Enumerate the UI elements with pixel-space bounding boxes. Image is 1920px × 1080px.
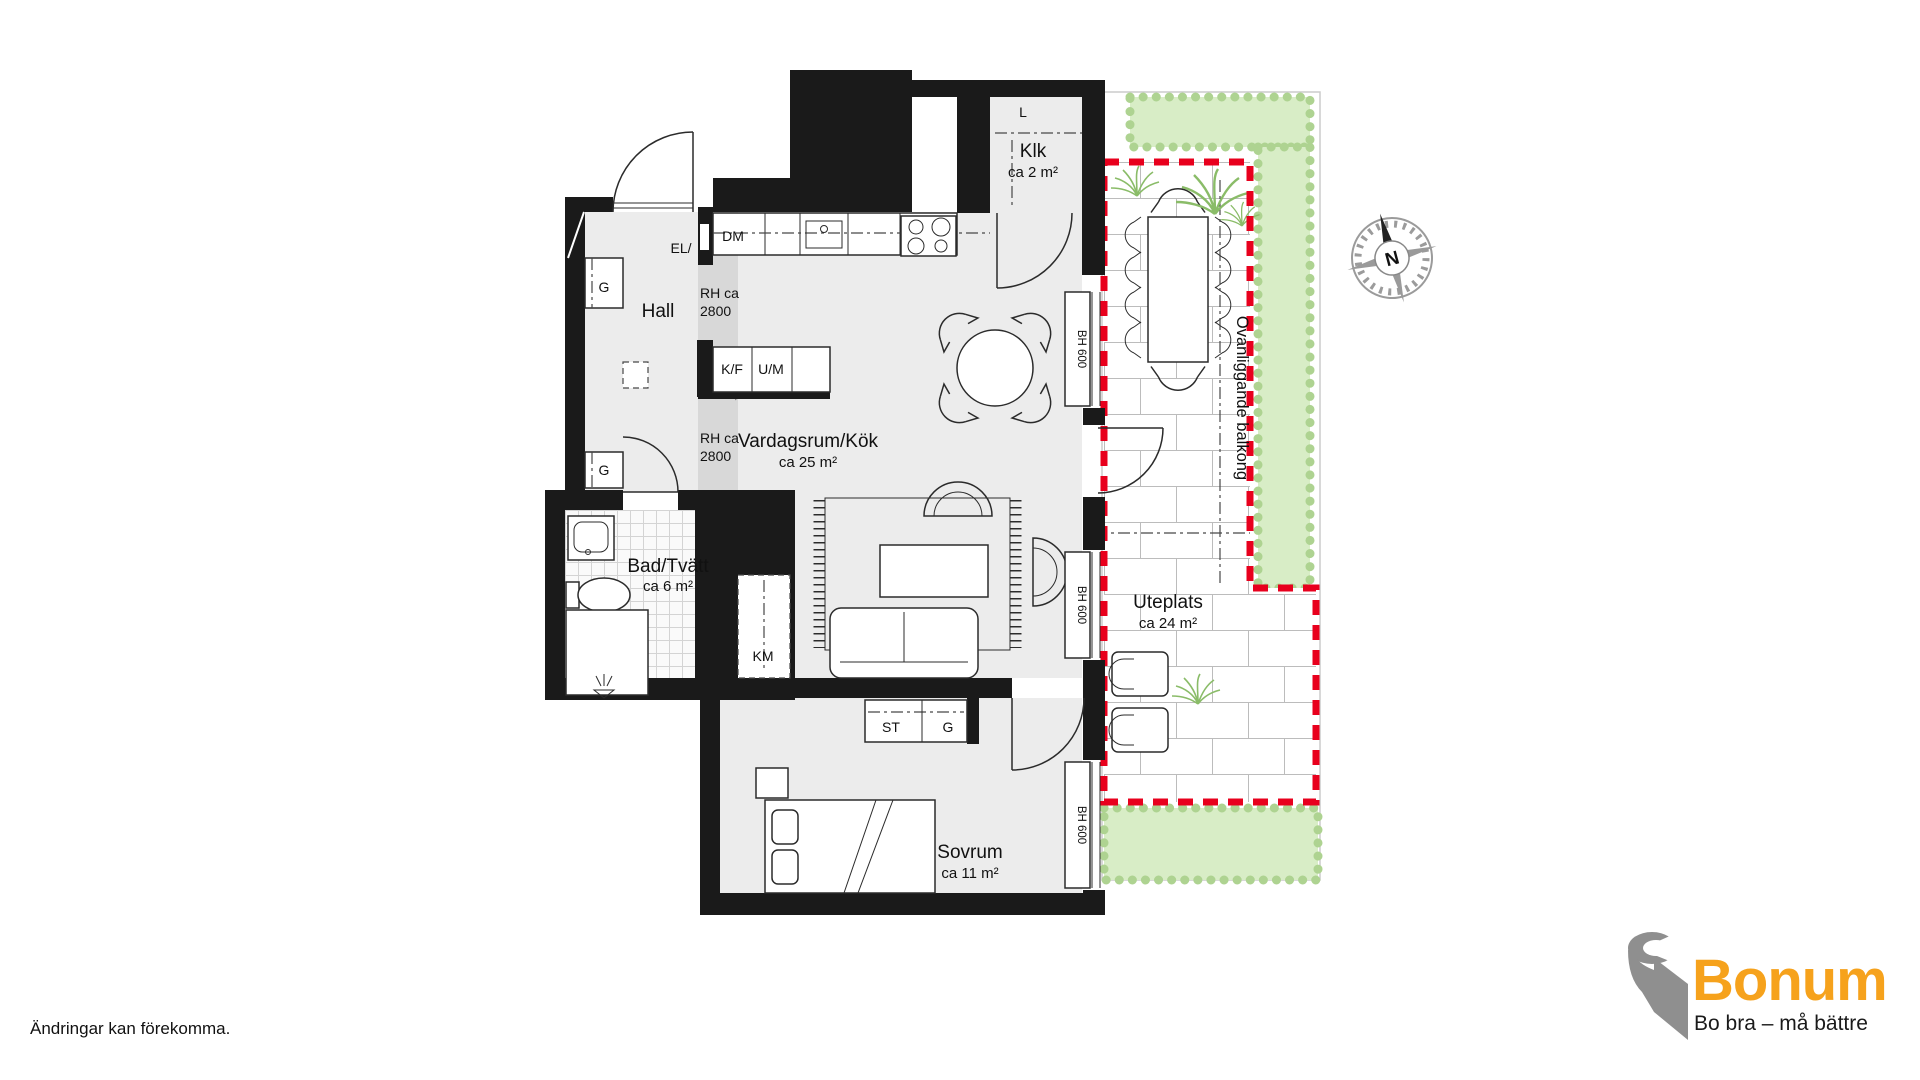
sofa (830, 608, 978, 678)
label-washing-machine: KM (753, 648, 774, 664)
label-wardrobe-g2: G (599, 462, 610, 478)
entry-door (613, 132, 693, 212)
window-height-label-1: BH 600 (1075, 330, 1087, 368)
compass-rose-icon: N (1336, 202, 1449, 315)
room-label-vardagsrum: Vardagsrum/Kök (738, 431, 879, 452)
label-ceiling-height-2a: RH ca (700, 430, 739, 446)
patio-lounge-chair (1109, 708, 1168, 752)
label-wardrobe-g1: G (599, 279, 610, 295)
floor-plan-drawing: Klk ca 2 m² Hall Vardagsrum/Kök ca 25 m²… (0, 0, 1920, 1080)
label-wardrobe-bedroom: G (943, 719, 954, 735)
room-label-sovrum: Sovrum (937, 842, 1002, 863)
bonum-brand-text: Bonum (1692, 948, 1887, 1013)
bonum-logo: Bonum Bo bra – må bättre (1628, 926, 1887, 1040)
bonum-tagline: Bo bra – må bättre (1694, 1012, 1868, 1035)
bathroom-sink (568, 516, 614, 560)
bonum-logo-icon (1628, 926, 1692, 1040)
toilet (566, 578, 630, 612)
nightstand (756, 768, 788, 798)
room-area-bad: ca 6 m² (643, 578, 693, 595)
patio-lounge-chair (1109, 652, 1168, 696)
room-area-vardagsrum: ca 25 m² (779, 454, 837, 471)
balcony-above-note: Ovanliggande balkong (1233, 316, 1251, 480)
label-ceiling-height-2b: 2800 (700, 448, 731, 464)
hedge-bottom (1104, 808, 1318, 880)
label-oven-micro: U/M (758, 361, 784, 377)
room-label-hall: Hall (642, 301, 675, 322)
pillow (772, 810, 798, 844)
footer-disclaimer: Ändringar kan förekomma. (30, 1019, 230, 1038)
label-fridge-freezer: K/F (721, 361, 743, 377)
electrical-cabinet (700, 224, 709, 250)
hedge-right (1258, 147, 1310, 588)
label-ceiling-height-1b: 2800 (700, 303, 731, 319)
room-label-klk: Klk (1020, 141, 1047, 162)
pillow (772, 850, 798, 884)
room-label-uteplats: Uteplats (1133, 592, 1203, 613)
window-height-label-3: BH 600 (1075, 806, 1087, 844)
shower (566, 610, 648, 698)
window-height-label-2: BH 600 (1075, 586, 1087, 624)
room-area-sovrum: ca 11 m² (941, 865, 998, 882)
label-ceiling-height-1a: RH ca (700, 285, 739, 301)
room-area-klk: ca 2 m² (1008, 164, 1058, 181)
bed (765, 800, 935, 893)
coffee-table (880, 545, 988, 597)
label-dishwasher: DM (722, 228, 744, 244)
hedge-top (1130, 97, 1310, 147)
floor-hatch (623, 362, 648, 388)
floor-plan-page: Klk ca 2 m² Hall Vardagsrum/Kök ca 25 m²… (0, 0, 1920, 1080)
stove (901, 216, 956, 256)
label-cleaning-cabinet: ST (882, 719, 900, 735)
label-electrical: EL/ (670, 240, 691, 256)
room-label-bad: Bad/Tvätt (627, 556, 709, 577)
label-closet-rod: L (1019, 104, 1027, 120)
room-area-uteplats: ca 24 m² (1139, 615, 1197, 632)
